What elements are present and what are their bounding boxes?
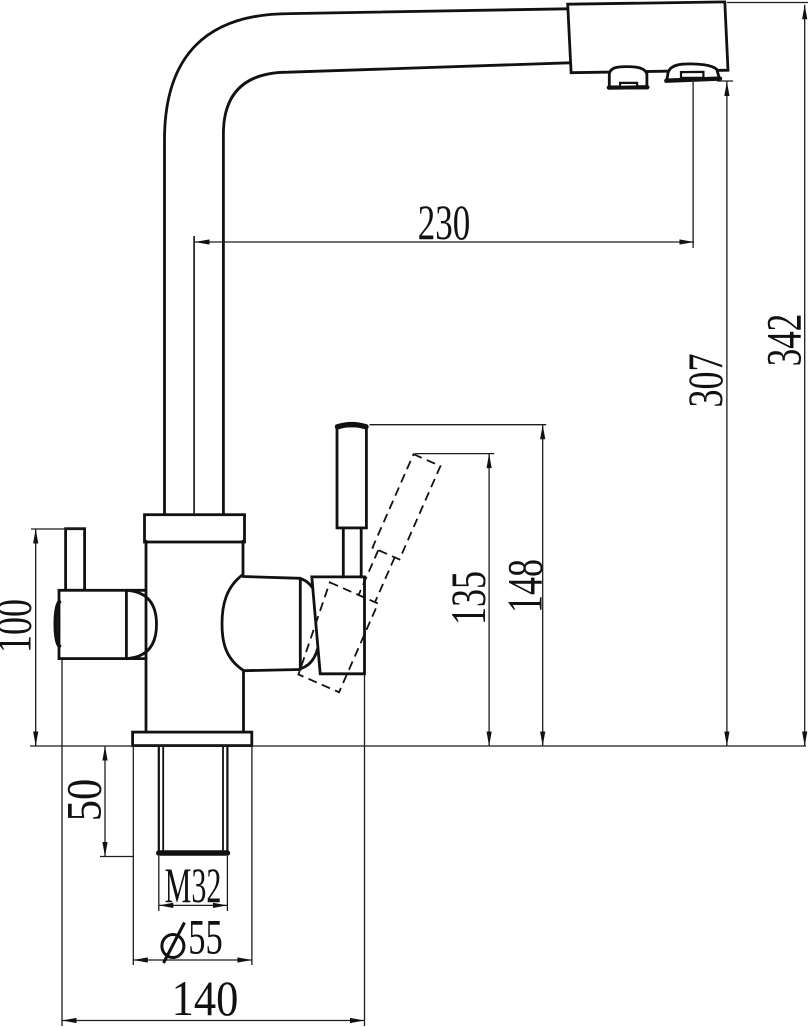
svg-text:55: 55 xyxy=(188,910,222,965)
svg-text:140: 140 xyxy=(172,972,239,1027)
svg-text:100: 100 xyxy=(0,599,42,653)
svg-text:230: 230 xyxy=(418,196,470,250)
svg-text:148: 148 xyxy=(498,559,553,613)
svg-text:M32: M32 xyxy=(165,857,222,913)
svg-text:50: 50 xyxy=(57,779,112,821)
svg-text:307: 307 xyxy=(678,354,733,408)
svg-text:135: 135 xyxy=(441,571,496,625)
svg-text:342: 342 xyxy=(758,314,810,366)
